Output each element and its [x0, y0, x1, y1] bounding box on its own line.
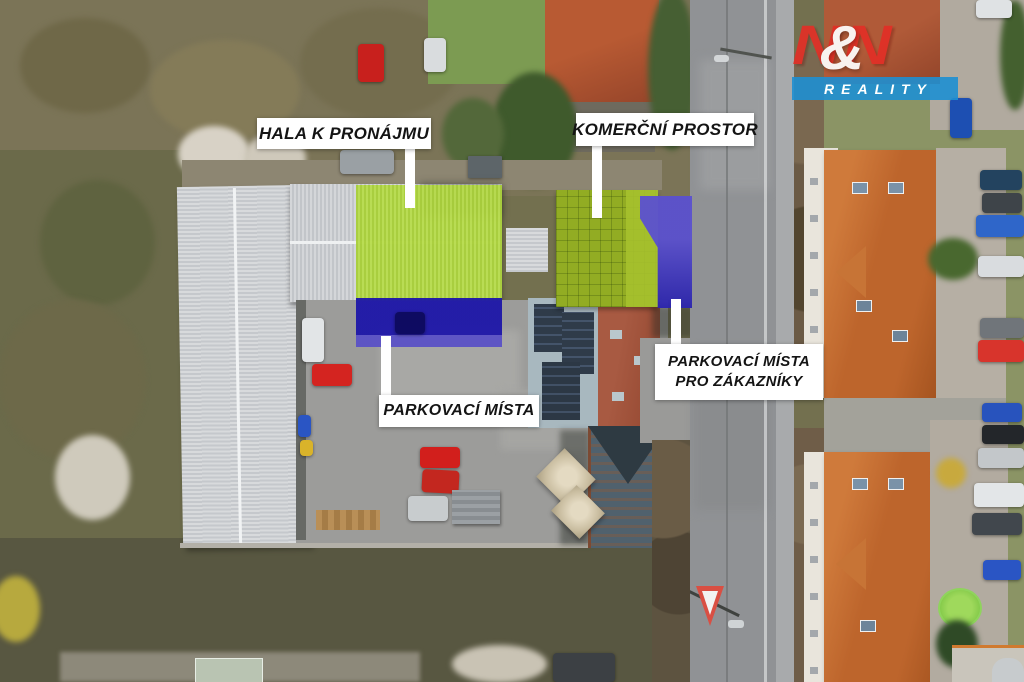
small-shed: [506, 228, 548, 272]
white-car: [976, 0, 1012, 18]
parked-car: [982, 403, 1022, 422]
parked-car: [976, 215, 1024, 237]
road-edge-line: [764, 0, 767, 682]
tree-right: [928, 238, 978, 280]
silver-car: [408, 496, 448, 521]
parked-car: [974, 483, 1024, 507]
commercial-label-text: KOMERČNÍ PROSTOR: [572, 120, 758, 140]
hall-label: HALA K PRONÁJMU: [257, 118, 431, 149]
parking-label-text: PARKOVACÍ MÍSTA: [383, 402, 534, 420]
parked-car: [978, 256, 1024, 277]
hall-label-lead: [405, 146, 415, 208]
blossom-bush-bottom: [452, 645, 547, 682]
customer-parking-label-line1: PARKOVACÍ MÍSTA: [668, 352, 810, 372]
sidewalk: [776, 0, 794, 682]
parked-car: [972, 513, 1022, 535]
blossom-tree: [55, 435, 130, 520]
street-lamp-head: [714, 55, 729, 62]
grey-van: [340, 150, 394, 174]
skylight: [856, 300, 872, 312]
bush: [20, 18, 150, 113]
logo-reality-bar: REALITY: [792, 77, 958, 100]
red-car: [312, 364, 352, 386]
hall-label-text: HALA K PRONÁJMU: [259, 124, 429, 144]
shed-dark: [468, 156, 502, 178]
pallets: [316, 510, 380, 530]
red-car: [420, 447, 460, 468]
logo-ampersand: &: [819, 20, 864, 79]
corner-building-silver-roof: [992, 658, 1024, 682]
blue-bin: [298, 415, 311, 437]
aerial-photo: HALA K PRONÁJMU KOMERČNÍ PROSTOR PARKOVA…: [0, 0, 1024, 682]
logo-reality-text: REALITY: [817, 81, 933, 97]
agency-logo: N & N REALITY: [792, 20, 964, 100]
parked-car: [978, 448, 1024, 468]
bush: [0, 300, 145, 460]
parking-label-lead: [381, 336, 391, 397]
skylight: [888, 478, 904, 490]
road-centerline-crack: [726, 0, 728, 682]
parked-van-bottom: [553, 653, 615, 682]
roof-window: [610, 330, 622, 339]
parked-car: [983, 560, 1021, 580]
yellow-tree: [936, 458, 966, 488]
commercial-label: KOMERČNÍ PROSTOR: [576, 113, 754, 146]
skylight: [852, 478, 868, 490]
skylight: [852, 182, 868, 194]
parked-car: [980, 318, 1024, 338]
greenhouse: [195, 658, 263, 682]
parked-car: [982, 425, 1024, 444]
white-car-top: [424, 38, 446, 72]
hedge-left: [652, 440, 690, 682]
parked-car: [980, 170, 1022, 190]
commercial-label-lead: [592, 144, 602, 218]
parked-car: [982, 193, 1022, 213]
solar-panels: [534, 304, 564, 352]
logo-nn-wordmark: N & N: [796, 18, 888, 79]
bush: [40, 180, 155, 305]
white-van: [302, 318, 324, 362]
blue-pickup: [950, 98, 972, 138]
street-lamp-head: [728, 620, 744, 628]
parking-label: PARKOVACÍ MÍSTA: [379, 395, 539, 427]
roof-window: [612, 392, 624, 401]
red-car-top: [358, 44, 384, 82]
customer-parking-label-line2: PRO ZÁKAZNÍKY: [675, 372, 802, 392]
customer-parking-label: PARKOVACÍ MÍSTA PRO ZÁKAZNÍKY: [655, 344, 823, 400]
customer-parking-label-lead: [671, 299, 681, 346]
car-under-overlay: [395, 312, 425, 334]
skylight: [892, 330, 908, 342]
hall-highlight-overlay: [356, 185, 502, 301]
yellow-bin: [300, 440, 313, 456]
skylight: [860, 620, 876, 632]
parked-car: [978, 340, 1024, 362]
solar-panels: [542, 362, 580, 420]
skylight: [888, 182, 904, 194]
loading-ramp: [452, 490, 500, 524]
parking-highlight-overlay: [356, 298, 502, 347]
